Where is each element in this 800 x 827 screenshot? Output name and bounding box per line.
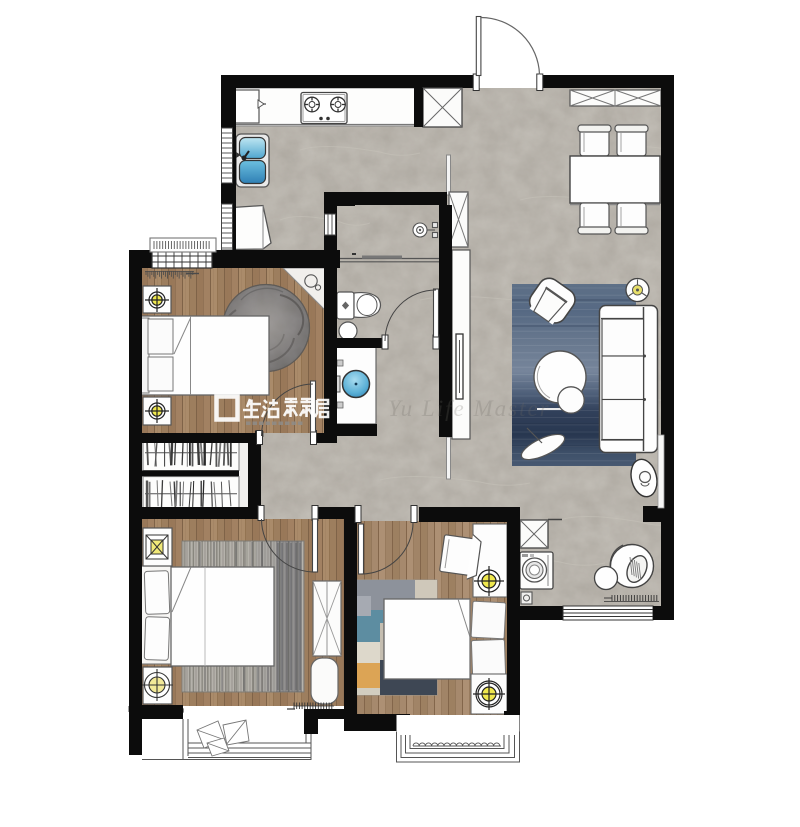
svg-text:Yu Life Master: Yu Life Master [388,396,551,421]
